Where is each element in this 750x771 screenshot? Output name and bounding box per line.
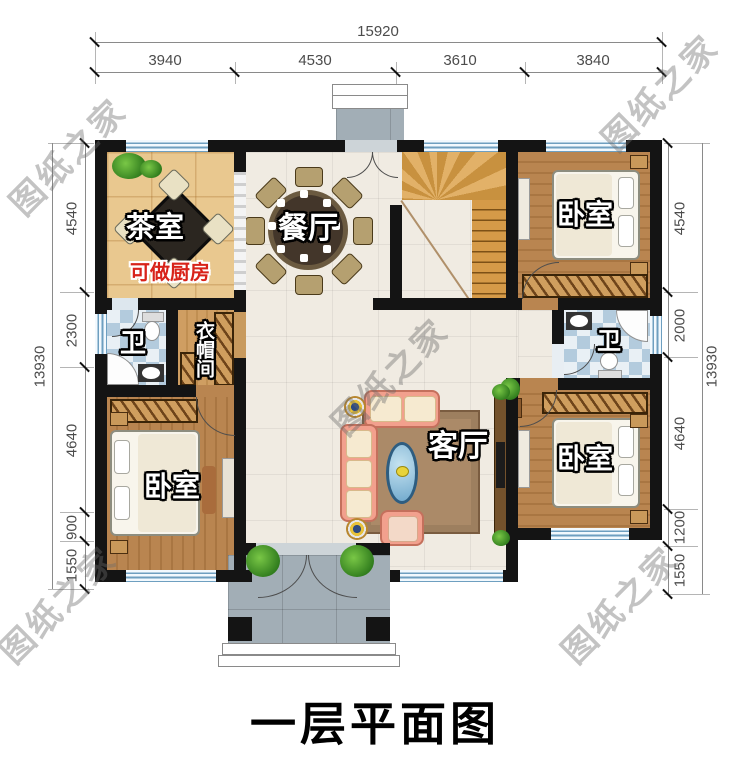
wall-stairs-left <box>390 205 402 310</box>
side-table <box>346 518 368 540</box>
dim-right-seg-0: 4540 <box>672 189 689 249</box>
door-opening-cloakroom <box>234 312 246 358</box>
page-title: 一层平面图 <box>180 688 570 754</box>
room-label-bedroom-br: 卧室 <box>528 444 642 475</box>
wardrobe-cloak-right <box>214 312 234 386</box>
nightstand <box>110 412 128 426</box>
window-stairs <box>424 140 498 152</box>
bush-icon <box>340 545 374 577</box>
dim-left-seg-2: 4640 <box>64 411 81 471</box>
plant-icon <box>492 384 510 400</box>
dim-top-total: 15920 <box>338 23 418 40</box>
ext-line <box>60 367 94 368</box>
dim-right-total: 13930 <box>704 332 721 402</box>
door-gap-bedroom-tr <box>522 298 558 310</box>
ext-line <box>95 32 96 84</box>
window-living <box>400 570 503 582</box>
floor-plan-canvas: 15920 3940 4530 3610 3840 13930 4540 230… <box>0 0 750 771</box>
room-label-cloakroom: 衣帽间 <box>188 310 214 388</box>
wall-bath-cloak-divider <box>166 310 178 390</box>
room-label-bathroom-left: 卫 <box>110 330 156 359</box>
door-gap-bedroom-br <box>520 378 558 390</box>
room-label-bedroom-tr: 卧室 <box>528 200 642 231</box>
armchair-cushion <box>388 516 418 542</box>
window-tea-room <box>126 140 208 152</box>
dim-left-total: 13930 <box>32 332 49 402</box>
sofa-cushion <box>346 460 372 488</box>
room-note-tea: 可做厨房 <box>103 256 237 285</box>
ext-line <box>664 143 710 144</box>
place-setting <box>300 254 308 262</box>
window-bedroom-bottom-right <box>551 528 629 540</box>
wardrobe-bottom-right <box>542 392 648 414</box>
door-gap-bathroom-right <box>552 344 564 378</box>
wall-left <box>95 140 107 582</box>
bottom-steps <box>222 643 396 655</box>
sink-icon <box>570 315 588 327</box>
nightstand <box>630 510 648 524</box>
stairs-winders <box>402 152 518 200</box>
dining-chair <box>295 275 323 295</box>
nightstand <box>630 155 648 169</box>
wall-stairs-right <box>506 152 518 310</box>
dim-line-left-total <box>52 143 53 589</box>
door-gap-bathroom-left <box>112 298 138 310</box>
door-gap-top-entry <box>345 140 397 152</box>
porch-column <box>366 617 390 641</box>
pillow <box>114 440 130 474</box>
place-setting <box>277 199 285 207</box>
dim-left-seg-0: 4540 <box>64 189 81 249</box>
window-bathroom-right <box>650 316 662 354</box>
room-label-tea: 茶室 <box>100 212 210 244</box>
sink-icon <box>142 367 160 379</box>
place-setting <box>277 245 285 253</box>
dim-top-seg-3: 3840 <box>553 52 633 69</box>
bottom-steps <box>218 655 400 667</box>
sofa-cushion <box>346 490 372 518</box>
window-bathroom-left <box>95 314 107 354</box>
window-bedroom-bottom-left <box>126 570 216 582</box>
sofa-cushion <box>404 396 436 422</box>
dim-right-seg-1: 2000 <box>672 296 689 356</box>
dim-left-seg-1: 2300 <box>64 301 81 361</box>
room-label-bathroom-right: 卫 <box>588 328 630 354</box>
place-setting <box>323 199 331 207</box>
dim-top-seg-0: 3940 <box>125 52 205 69</box>
place-setting <box>300 190 308 198</box>
plant-icon <box>492 530 510 546</box>
dim-top-seg-1: 4530 <box>275 52 355 69</box>
room-label-dining: 餐厅 <box>250 212 366 245</box>
dim-top-seg-2: 3610 <box>420 52 500 69</box>
porch-column <box>228 617 252 641</box>
room-label-bedroom-bl: 卧室 <box>116 472 228 503</box>
plant-icon <box>140 160 162 178</box>
dim-line-top-total <box>95 42 662 43</box>
dining-chair <box>295 167 323 187</box>
table-decor <box>396 466 409 477</box>
dim-right-seg-2: 4640 <box>672 404 689 464</box>
room-label-living: 客厅 <box>400 430 516 463</box>
place-setting <box>323 245 331 253</box>
ext-line <box>60 292 94 293</box>
top-steps <box>332 95 408 109</box>
bush-icon <box>246 545 280 577</box>
nightstand <box>630 414 648 428</box>
dim-line-top-segments <box>95 72 662 73</box>
